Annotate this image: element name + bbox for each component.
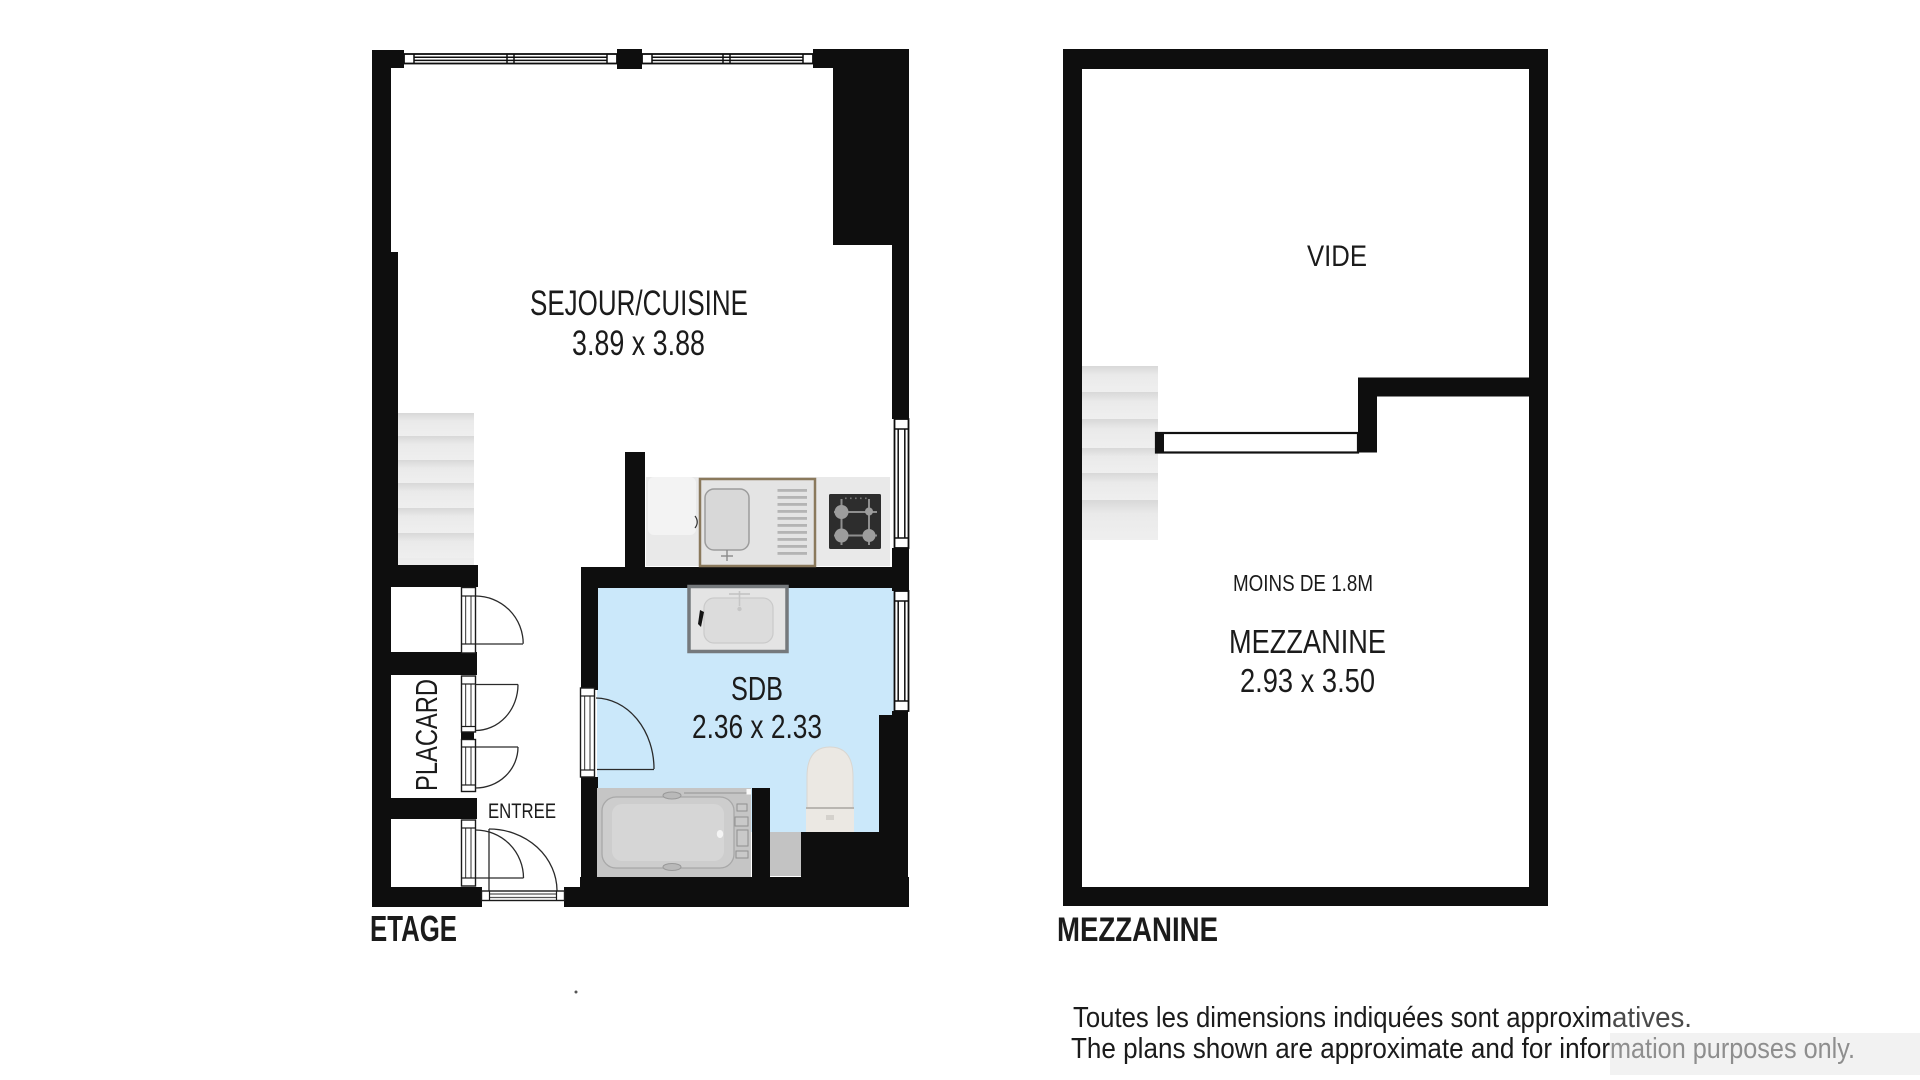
svg-text:MEZZANINE: MEZZANINE [1057,911,1218,949]
svg-text:VIDE: VIDE [1307,240,1367,273]
svg-text:MOINS DE 1.8M: MOINS DE 1.8M [1233,570,1373,596]
svg-text:2.36 x 2.33: 2.36 x 2.33 [692,708,822,745]
svg-text:SEJOUR/CUISINE: SEJOUR/CUISINE [530,284,748,323]
svg-text:mation purposes only.: mation purposes only. [1610,1033,1855,1065]
svg-text:3.89 x 3.88: 3.89 x 3.88 [572,324,705,363]
svg-text:PLACARD: PLACARD [409,679,444,791]
svg-text:atives.: atives. [1612,1002,1692,1034]
svg-text:MEZZANINE: MEZZANINE [1229,623,1386,660]
svg-text:The plans shown are approximat: The plans shown are approximate and for … [1071,1033,1610,1065]
svg-text:ETAGE: ETAGE [370,908,457,949]
svg-text:Toutes les dimensions indiquée: Toutes les dimensions indiquées sont app… [1073,1002,1612,1034]
svg-text:2.93 x 3.50: 2.93 x 3.50 [1240,662,1375,699]
svg-text:SDB: SDB [731,670,783,707]
svg-text:ENTREE: ENTREE [488,800,556,823]
